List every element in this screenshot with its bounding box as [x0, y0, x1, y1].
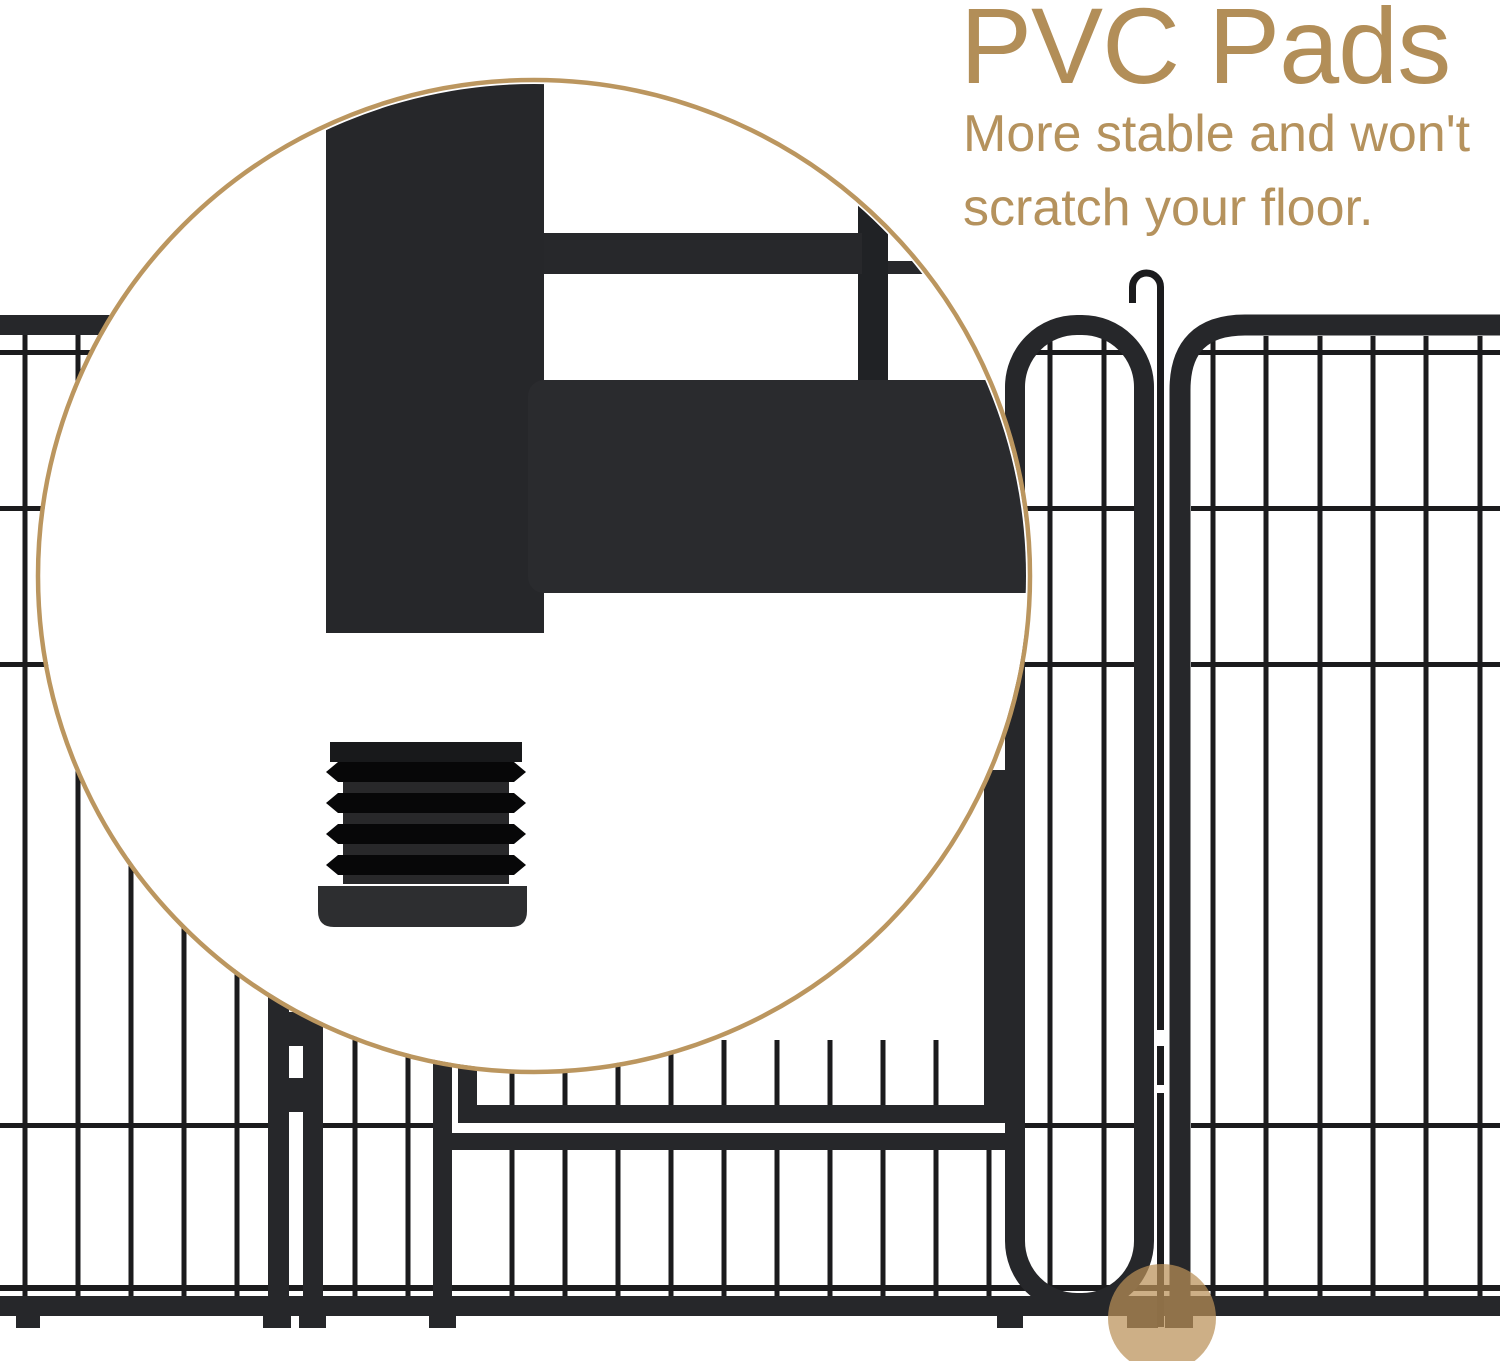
bottom-frame-bar — [0, 1296, 1500, 1316]
door-frame-post — [433, 1030, 452, 1313]
hinge-knuckle — [287, 1012, 304, 1046]
feature-heading: PVC Pads — [960, 0, 1480, 100]
door-leaf-bottom-rail — [458, 1105, 1005, 1123]
pvc-pad-closeup — [318, 742, 527, 927]
door-leaf-stile-right — [984, 770, 1005, 1123]
fence-feet — [16, 1314, 1193, 1328]
latch-pin — [1157, 333, 1164, 1327]
gate-bottom-rail — [452, 1133, 1016, 1150]
gate-door-arch — [1015, 325, 1144, 1303]
hinge-knuckle — [287, 1078, 304, 1112]
magnified-post — [326, 55, 544, 633]
magnified-top-wire — [544, 233, 862, 274]
latch-hook-icon — [1133, 273, 1161, 336]
right-panel-frame — [1180, 325, 1500, 1313]
product-feature-image: PVC Pads More stable and won't scratch y… — [0, 0, 1500, 1361]
door-arch-wires — [1048, 337, 1107, 1296]
feature-title: PVC Pads — [960, 0, 1480, 100]
right-panel-wires — [1211, 336, 1483, 1296]
pvc-pad-base — [318, 886, 527, 927]
feature-subtitle-line2: scratch your floor. — [963, 171, 1483, 245]
feature-subtitle-line1: More stable and won't — [963, 97, 1483, 171]
feature-subtitle: More stable and won't scratch your floor… — [963, 97, 1483, 245]
